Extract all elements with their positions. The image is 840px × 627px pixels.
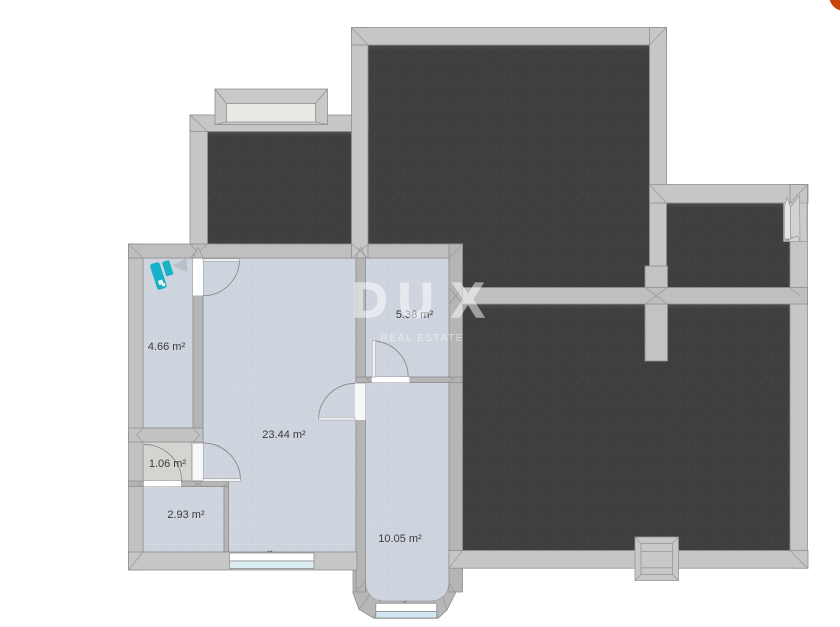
svg-text:2.93 m²: 2.93 m² <box>167 509 205 521</box>
svg-text:DUX: DUX <box>352 274 485 328</box>
svg-text:4.66 m²: 4.66 m² <box>148 341 186 353</box>
svg-text:REAL ESTATE: REAL ESTATE <box>381 333 465 344</box>
svg-text:23.44 m²: 23.44 m² <box>262 429 306 441</box>
svg-text:1.06 m²: 1.06 m² <box>149 458 187 470</box>
svg-text:10.05 m²: 10.05 m² <box>378 533 422 545</box>
